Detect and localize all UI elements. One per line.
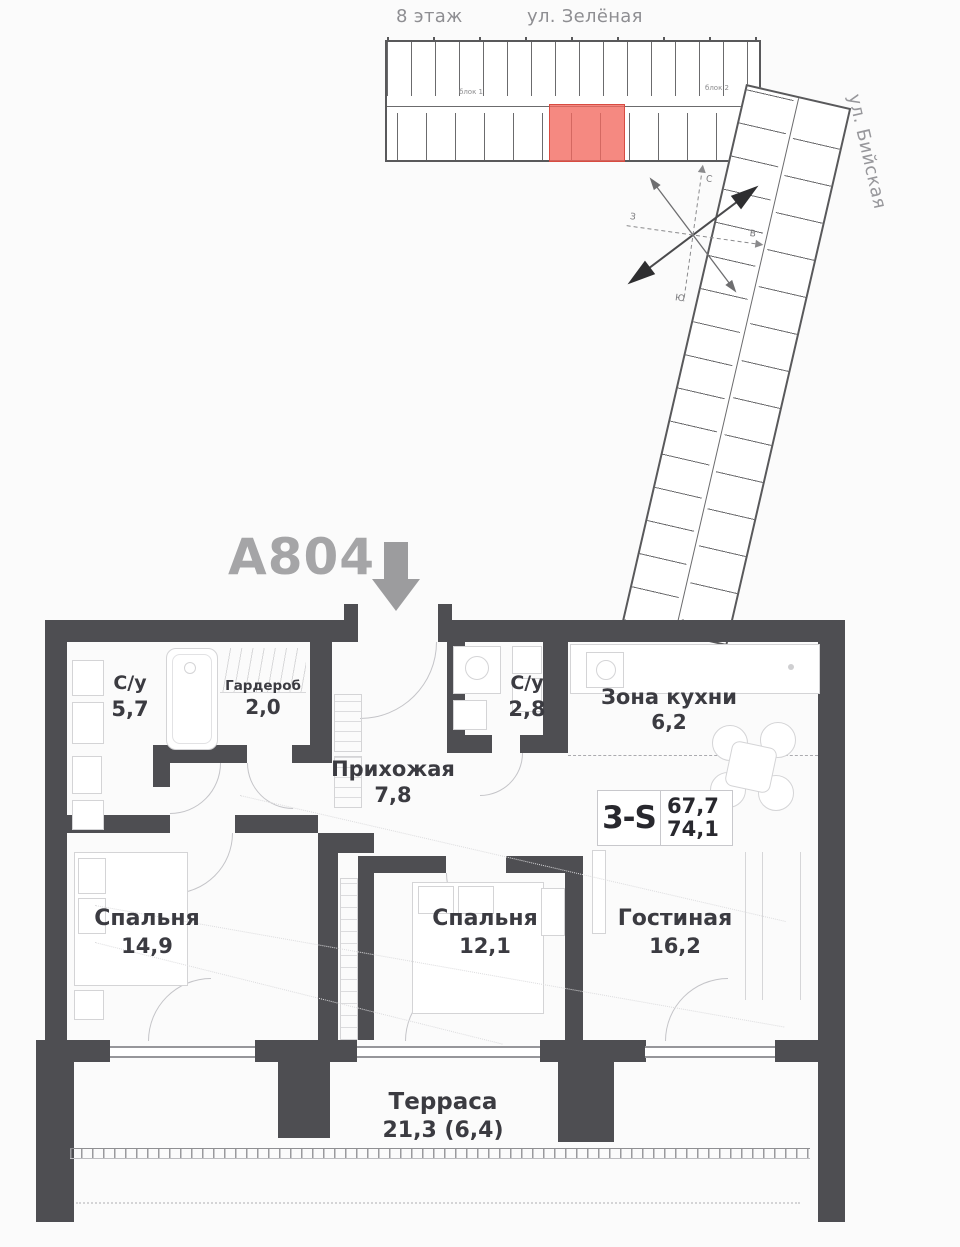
arrow-shaft <box>384 542 408 579</box>
room-name: Гостиная <box>605 905 745 933</box>
floor-label: 8 этаж <box>396 6 463 27</box>
room-area: 2,0 <box>213 695 313 720</box>
sofa-line <box>800 852 801 1000</box>
room-label-hall: Прихожая 7,8 <box>318 756 468 809</box>
wall <box>818 620 845 1222</box>
room-name: Гардероб <box>213 678 313 695</box>
unit-type: 3-S <box>598 791 660 845</box>
wall <box>45 620 67 1052</box>
sofa-line <box>762 852 763 1000</box>
arrow-head <box>372 579 420 611</box>
wall <box>438 620 845 642</box>
wall <box>520 735 568 753</box>
unit-areas: 67,7 74,1 <box>660 791 732 845</box>
wall <box>318 833 374 853</box>
room-area: 14,9 <box>77 933 217 959</box>
wall <box>438 604 452 620</box>
compass-letter-w: З <box>629 212 636 223</box>
unit-type-badge: 3-S 67,7 74,1 <box>597 790 733 846</box>
wall <box>558 1062 614 1142</box>
highlighted-unit <box>549 104 625 162</box>
room-label-kitchen: Зона кухни 6,2 <box>593 684 745 735</box>
compass-letter-n: С <box>705 174 713 185</box>
kitchen-sink-bowl <box>596 660 616 680</box>
wall <box>447 735 492 753</box>
closet-shelving <box>340 878 358 1040</box>
room-label-bedroom-2: Спальня 12,1 <box>415 905 555 959</box>
terrace-door-arc <box>148 978 211 1041</box>
entry-door-arc <box>360 642 437 719</box>
wall <box>775 1040 818 1062</box>
room-name: Прихожая <box>318 756 468 782</box>
room-label-bathroom-1: С/у 5,7 <box>85 672 175 722</box>
window <box>110 1046 255 1058</box>
wall <box>310 620 332 763</box>
room-label-bedroom-1: Спальня 14,9 <box>77 905 217 959</box>
compass-icon: С В Ю З <box>608 150 777 319</box>
room-area: 16,2 <box>605 933 745 959</box>
entry-arrow-icon <box>372 542 420 612</box>
dining-table <box>724 740 779 795</box>
room-label-wardrobe: Гардероб 2,0 <box>213 678 313 720</box>
wall <box>255 1040 357 1062</box>
terrace-edge-dotted <box>76 1202 800 1204</box>
room-area: 12,1 <box>415 933 555 959</box>
window <box>357 1046 540 1058</box>
room-label-terrace: Терраса 21,3 (6,4) <box>320 1088 566 1144</box>
strip-units-top <box>387 42 759 96</box>
counter-detail <box>788 664 794 670</box>
unit-code: А804 <box>228 528 375 586</box>
terrace-railing <box>70 1148 810 1159</box>
wall <box>540 1040 646 1062</box>
room-name: Спальня <box>77 905 217 933</box>
street-label-side: ул. Бийская <box>844 92 891 211</box>
wall <box>358 873 374 1040</box>
door-arc <box>170 763 221 814</box>
wall <box>565 873 583 1040</box>
block2-label: блок 2 <box>705 84 729 92</box>
room-name: Зона кухни <box>593 684 745 710</box>
nightstand <box>74 990 104 1020</box>
area-total: 74,1 <box>667 818 732 841</box>
wall <box>45 815 170 833</box>
terrace-door-arc <box>665 978 728 1041</box>
hall-shelving <box>334 694 362 752</box>
wall <box>318 833 338 1040</box>
room-area: 6,2 <box>593 710 745 735</box>
room-name: С/у <box>482 672 572 696</box>
room-area: 2,8 <box>482 696 572 722</box>
room-label-living: Гостиная 16,2 <box>605 905 745 959</box>
compass-letter-s: Ю <box>674 293 685 304</box>
pillow <box>78 858 106 894</box>
door-arc <box>480 753 523 796</box>
bathroom-fixture <box>72 800 104 830</box>
wall <box>358 856 446 873</box>
tv-unit <box>592 850 606 934</box>
room-name: Терраса <box>320 1088 566 1117</box>
room-label-bathroom-2: С/у 2,8 <box>482 672 572 722</box>
bathtub-drain <box>184 662 196 674</box>
wall <box>344 604 358 620</box>
block1-label: блок 1 <box>459 88 483 96</box>
room-name: Спальня <box>415 905 555 933</box>
compass-letter-e: В <box>749 229 757 240</box>
room-name: С/у <box>85 672 175 696</box>
terrace-wall-column <box>36 1040 74 1222</box>
window <box>645 1046 775 1058</box>
room-area: 21,3 (6,4) <box>320 1117 566 1145</box>
room-area: 7,8 <box>318 782 468 808</box>
floorplan-page: 8 этаж ул. Зелёная блок 1 блок 2 ул. Бий… <box>0 0 960 1247</box>
sofa-line <box>745 852 746 1000</box>
area-living: 67,7 <box>667 795 732 818</box>
street-label-top: ул. Зелёная <box>527 6 643 27</box>
toilet <box>72 756 102 794</box>
building-strip-plan: блок 1 блок 2 <box>385 40 761 162</box>
wall <box>235 815 318 833</box>
wall <box>153 745 170 787</box>
sink <box>512 646 542 674</box>
room-area: 5,7 <box>85 696 175 722</box>
